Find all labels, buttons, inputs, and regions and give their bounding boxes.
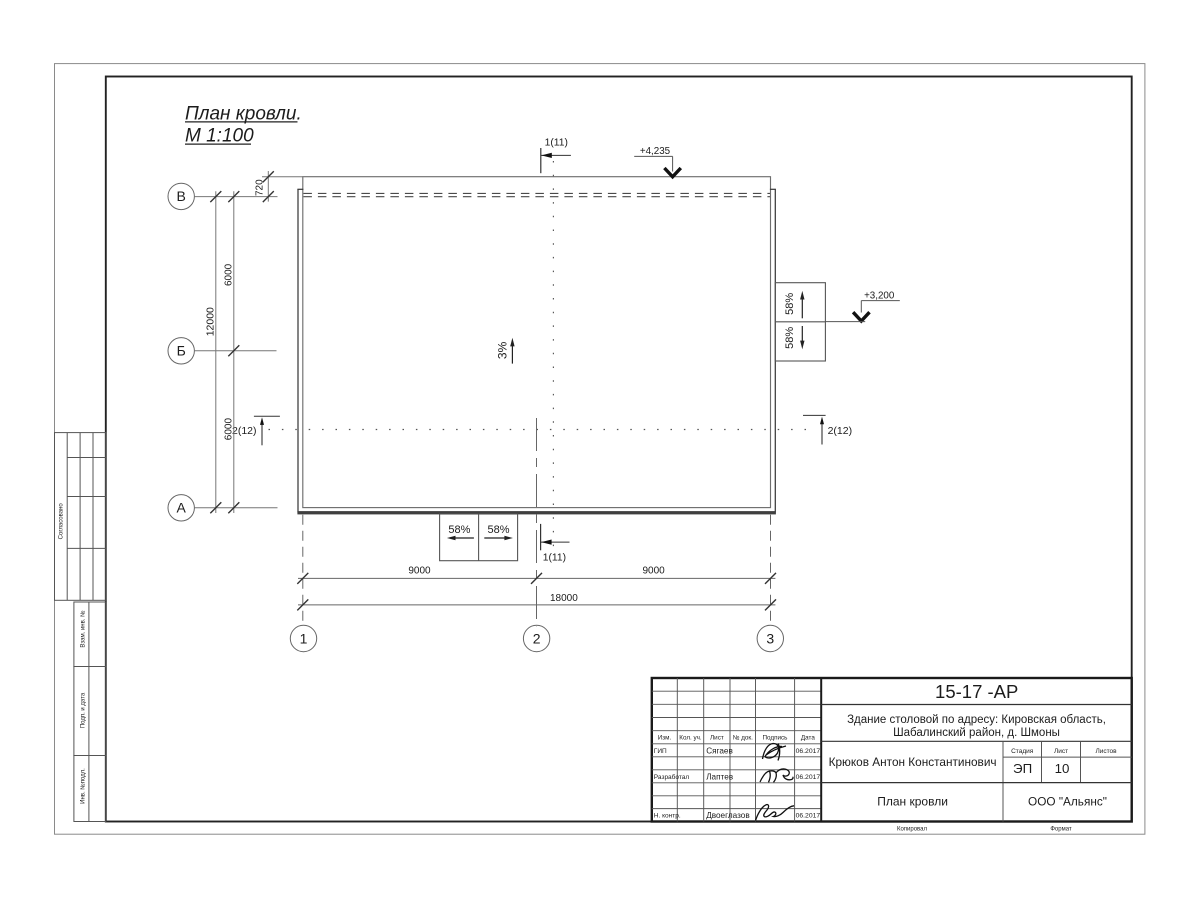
svg-text:Лаптев: Лаптев xyxy=(706,772,733,781)
svg-text:Разработал: Разработал xyxy=(654,773,690,781)
svg-text:А: А xyxy=(177,500,187,516)
svg-text:Инв. №подл.: Инв. №подл. xyxy=(80,768,87,804)
svg-text:06.2017: 06.2017 xyxy=(796,813,821,820)
svg-text:Шабалинский район, д. Шмоны: Шабалинский район, д. Шмоны xyxy=(893,727,1060,739)
svg-text:720: 720 xyxy=(255,179,266,196)
svg-text:+4,235: +4,235 xyxy=(640,146,671,157)
svg-text:1(11): 1(11) xyxy=(543,553,566,564)
svg-text:Подпись: Подпись xyxy=(763,735,789,742)
svg-text:3%: 3% xyxy=(495,341,509,359)
svg-text:Листов: Листов xyxy=(1095,748,1117,755)
svg-text:Н. контр.: Н. контр. xyxy=(654,813,681,820)
svg-text:№ док.: № док. xyxy=(733,735,753,742)
svg-text:План кровли: План кровли xyxy=(877,795,948,809)
svg-text:10: 10 xyxy=(1055,761,1070,776)
svg-text:2: 2 xyxy=(533,630,541,646)
svg-text:6000: 6000 xyxy=(224,263,235,286)
svg-text:Двоеглазов: Двоеглазов xyxy=(706,811,750,820)
svg-text:9000: 9000 xyxy=(408,565,431,576)
svg-text:Стадия: Стадия xyxy=(1011,748,1034,755)
svg-text:В: В xyxy=(177,188,186,204)
svg-text:15-17 -АР: 15-17 -АР xyxy=(935,681,1018,702)
svg-text:1(11): 1(11) xyxy=(545,137,568,148)
svg-text:Формат: Формат xyxy=(1050,827,1072,833)
svg-text:58%: 58% xyxy=(487,524,509,536)
svg-text:Кол. уч.: Кол. уч. xyxy=(679,735,702,742)
svg-text:Лист: Лист xyxy=(710,735,724,742)
svg-text:Изм.: Изм. xyxy=(658,735,672,742)
svg-text:58%: 58% xyxy=(784,327,796,349)
svg-text:58%: 58% xyxy=(448,524,470,536)
svg-text:ГИП: ГИП xyxy=(654,748,667,755)
svg-text:+3,200: +3,200 xyxy=(864,291,895,302)
svg-text:Согласовано: Согласовано xyxy=(59,503,65,540)
svg-text:12000: 12000 xyxy=(205,307,217,336)
svg-text:06.2017: 06.2017 xyxy=(796,748,821,755)
svg-text:58%: 58% xyxy=(784,293,796,315)
svg-text:Взам. инв. №: Взам. инв. № xyxy=(80,610,87,647)
svg-text:2(12): 2(12) xyxy=(232,425,257,437)
svg-text:06.2017: 06.2017 xyxy=(796,774,821,781)
svg-text:1: 1 xyxy=(300,630,308,646)
svg-text:Сягаев: Сягаев xyxy=(706,746,733,755)
svg-text:Крюков Антон Константинович: Крюков Антон Константинович xyxy=(829,755,997,769)
svg-text:ООО "Альянс": ООО "Альянс" xyxy=(1028,795,1107,809)
svg-text:Дата: Дата xyxy=(801,735,815,742)
svg-text:18000: 18000 xyxy=(550,593,578,604)
svg-text:ЭП: ЭП xyxy=(1013,761,1032,776)
svg-text:9000: 9000 xyxy=(642,565,665,576)
svg-text:Здание столовой по адресу: Кир: Здание столовой по адресу: Кировская обл… xyxy=(847,714,1106,726)
svg-text:Лист: Лист xyxy=(1054,748,1068,755)
svg-text:Копировал: Копировал xyxy=(897,827,928,833)
svg-text:Б: Б xyxy=(177,343,186,359)
svg-text:Подп. и дата: Подп. и дата xyxy=(81,692,87,728)
svg-text:2(12): 2(12) xyxy=(828,425,853,437)
svg-text:3: 3 xyxy=(766,630,774,646)
svg-text:6000: 6000 xyxy=(224,418,235,441)
